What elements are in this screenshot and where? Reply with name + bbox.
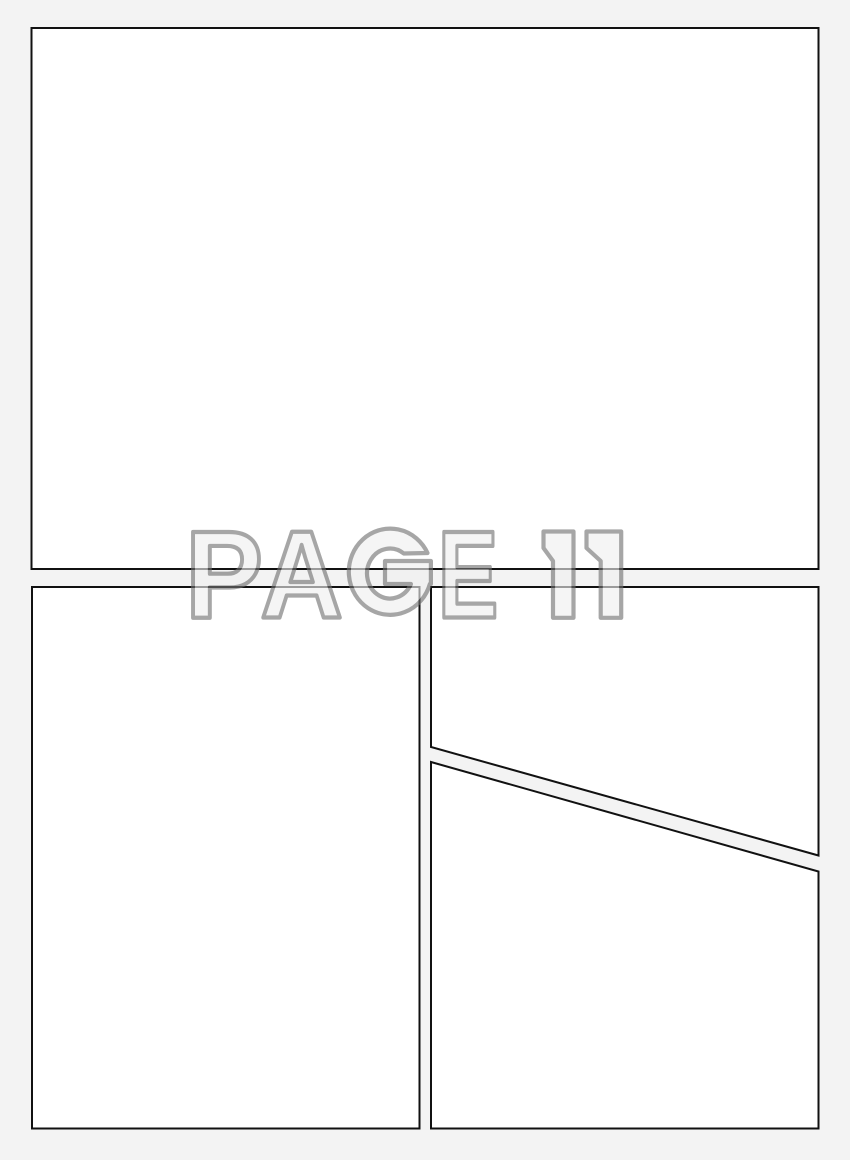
svg-text:A: A <box>260 507 343 645</box>
svg-text:E: E <box>438 507 499 645</box>
svg-text:P: P <box>185 507 263 645</box>
